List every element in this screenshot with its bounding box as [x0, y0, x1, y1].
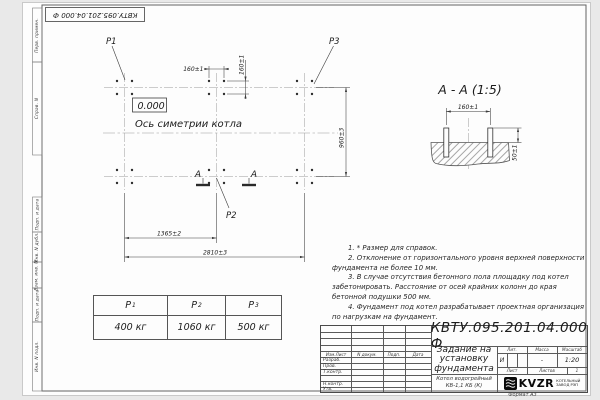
grid-line	[383, 326, 384, 392]
kvzr-caption-line: ЗАВОД РЭП	[556, 383, 578, 387]
section-dim-50: 50±1	[512, 145, 519, 161]
section-dimension-arrows	[446, 110, 519, 142]
label-p3: P3	[329, 37, 340, 47]
section-mark-left: А	[194, 170, 201, 180]
lit-label: Лит.	[497, 346, 527, 353]
sidebar-label: Подп. и дата	[35, 289, 40, 321]
scale-value: 1:20	[557, 353, 587, 367]
loads-table-header-p2: P2	[168, 296, 226, 316]
sidebar-field-inv-dubl: Инв. N дубл.	[33, 232, 42, 262]
concrete-pad	[431, 143, 510, 166]
sidebar-field-podp-data-1: Подп. и дата	[33, 197, 42, 232]
p-base: P	[125, 300, 131, 311]
row-nkontr: Н.контр.	[323, 382, 343, 387]
col-data: Дата	[405, 351, 431, 357]
grid-line	[351, 326, 352, 392]
sidebar-label: Взам. инв. N	[35, 260, 40, 290]
note-item: 2. Отклонение от горизонтального уровня …	[332, 254, 586, 274]
row-utv: Утв.	[323, 387, 332, 392]
kvzr-caption-line: КОТЕЛЬНЫЙ	[556, 379, 580, 383]
sheets-value: 1	[567, 367, 587, 374]
product-name-line: Котел водогрейный	[436, 376, 492, 383]
lit-value: И	[497, 353, 507, 367]
p-sub: 3	[255, 302, 259, 309]
drawing-title: Задание на установку фундамента	[431, 346, 497, 374]
grid-line	[321, 332, 431, 333]
centerlines	[103, 73, 468, 190]
mass-label: Масса	[527, 346, 557, 353]
note-item: 1. * Размер для справок.	[332, 244, 586, 254]
label-p1: P1	[106, 37, 117, 47]
product-name: Котел водогрейный КВ-1,1 КБ (К)	[431, 374, 497, 392]
col-n-dokum: N докум.	[351, 351, 383, 357]
sheet-label: Лист	[497, 367, 527, 374]
top-stamp: КВТУ.095.201.04.000 Ф	[45, 7, 145, 22]
sheets-label: Листов	[527, 367, 567, 374]
section-dimensions	[446, 108, 521, 143]
section-mark-right: А	[250, 170, 257, 180]
grid-line	[321, 345, 431, 346]
dim-160-vertical: 160±1	[239, 55, 246, 75]
anchor-bolt-dots	[116, 80, 313, 184]
loads-table-header-p3: P3	[226, 296, 281, 316]
p-sub: 1	[132, 302, 136, 309]
title-block: Изм.Лист N докум. Подп. Дата Разраб. Про…	[320, 325, 588, 393]
grid-line	[405, 326, 406, 392]
dim-160-horizontal: 160±1	[183, 66, 203, 73]
loads-table-value-p1: 400 кг	[94, 316, 168, 339]
scale-label: Масштаб	[557, 346, 587, 353]
sidebar-label: Инв. N дубл.	[35, 232, 40, 263]
kvzr-logo: KVZR КОТЕЛЬНЫЙ ЗАВОД РЭП	[497, 374, 587, 392]
dim-2810: 2810±3	[203, 250, 227, 257]
top-stamp-text: КВТУ.095.201.04.000 Ф	[53, 11, 137, 19]
grid-line	[507, 353, 508, 367]
grid-line	[321, 387, 431, 388]
loads-table-value-p3: 500 кг	[226, 316, 281, 339]
kvzr-logo-caption: КОТЕЛЬНЫЙ ЗАВОД РЭП	[556, 379, 580, 388]
section-title: А - А (1:5)	[437, 82, 501, 97]
sidebar-field-vzam-inv: Взам. инв. N	[33, 262, 42, 288]
grid-line	[321, 375, 431, 376]
mass-value: -	[527, 353, 557, 367]
note-item: 3. В случае отсутствия бетонного пола пл…	[332, 273, 586, 302]
row-prov: Пров.	[323, 364, 336, 369]
row-razrab: Разраб.	[323, 358, 341, 363]
drawing-page: 160±1 160±1 960±3 1365±2 2810±3 P1 P3 P2…	[0, 0, 600, 400]
sidebar-field-inv-podl: Инв. N подл.	[33, 322, 42, 391]
drawing-title-line: фундамента	[434, 365, 494, 374]
sidebar-field-perv-primen: Перв. примен.	[33, 8, 42, 62]
section-cut-marks	[196, 178, 256, 185]
sidebar-label: Справ. N	[35, 98, 40, 119]
loads-table-value-p2: 1060 кг	[168, 316, 226, 339]
format-label: Формат А3	[480, 392, 565, 398]
p-sub: 2	[198, 302, 202, 309]
document-number: КВТУ.095.201.04.000 Ф	[431, 326, 587, 346]
sidebar-label: Подп. и дата	[35, 199, 40, 231]
kvzr-logo-text: KVZR	[519, 377, 554, 390]
dim-1365: 1365±2	[157, 231, 181, 238]
col-podp: Подп.	[383, 351, 405, 357]
row-tkontr: Т.контр.	[323, 370, 343, 375]
grid-line	[517, 353, 518, 367]
label-p2: P2	[226, 211, 237, 221]
loads-table: P1 P2 P3 400 кг 1060 кг 500 кг	[93, 295, 282, 340]
sidebar-label: Инв. N подл.	[35, 341, 40, 372]
p-base: P	[191, 300, 197, 311]
loads-table-header-p1: P1	[94, 296, 168, 316]
section-dim-160: 160±1	[458, 104, 478, 111]
dim-960: 960±3	[339, 128, 346, 148]
notes-block: 1. * Размер для справок. 2. Отклонение о…	[332, 244, 586, 322]
product-name-line: КВ-1,1 КБ (К)	[446, 383, 482, 390]
axis-label: Ось симетрии котла	[135, 119, 242, 130]
sidebar-field-sprav-n: Справ. N	[33, 62, 42, 155]
sidebar-label: Перв. примен.	[35, 18, 40, 53]
col-izm-list: Изм.Лист	[321, 351, 351, 357]
grid-line	[321, 363, 431, 364]
kvzr-emblem-icon	[504, 377, 517, 390]
p-base: P	[248, 300, 254, 311]
level-mark: 0.000	[138, 101, 165, 112]
grid-line	[321, 338, 431, 339]
sidebar-field-podp-data-2: Подп. и дата	[33, 288, 42, 322]
